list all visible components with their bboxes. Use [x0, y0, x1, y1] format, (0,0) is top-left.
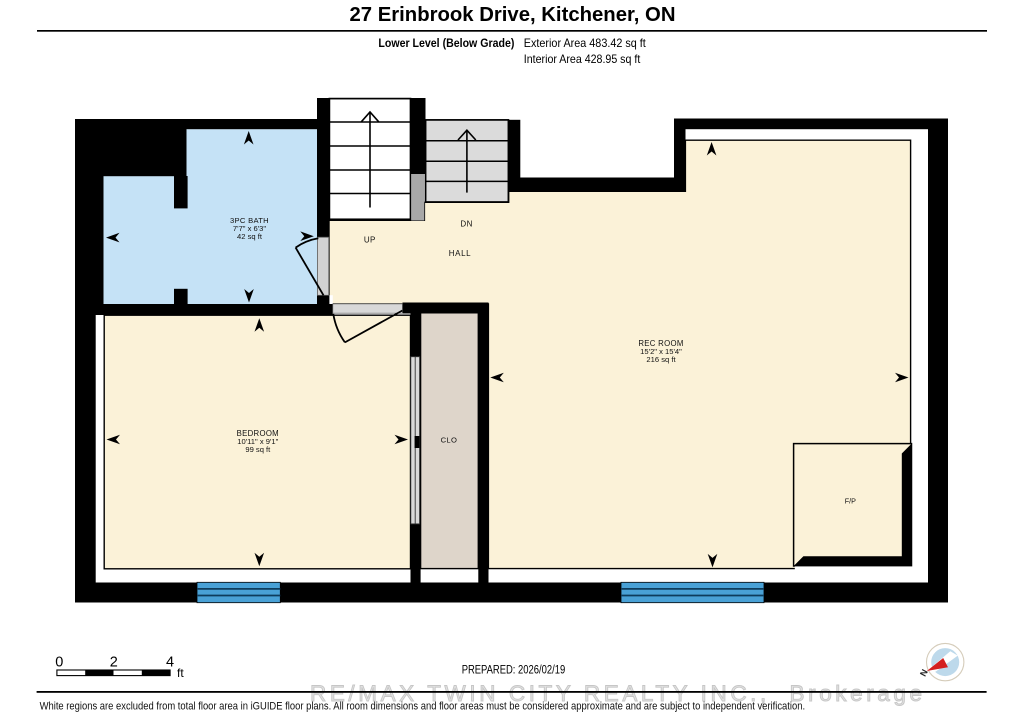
svg-text:2: 2 — [110, 655, 118, 671]
svg-text:DN: DN — [460, 220, 472, 229]
svg-text:27 Erinbrook Drive, Kitchener,: 27 Erinbrook Drive, Kitchener, ON — [350, 3, 676, 26]
svg-text:HALL: HALL — [449, 249, 471, 258]
svg-text:Interior Area 428.95 sq ft: Interior Area 428.95 sq ft — [524, 52, 641, 66]
svg-text:4: 4 — [166, 655, 174, 671]
svg-text:CLO: CLO — [441, 436, 458, 445]
svg-text:White regions are excluded fro: White regions are excluded from total fl… — [40, 700, 806, 712]
svg-text:0: 0 — [55, 655, 63, 671]
svg-text:UP: UP — [364, 236, 376, 245]
svg-text:Lower Level (Below Grade): Lower Level (Below Grade) — [378, 36, 514, 50]
svg-text:ft: ft — [177, 666, 184, 680]
svg-text:99 sq ft: 99 sq ft — [245, 445, 271, 454]
svg-text:42 sq ft: 42 sq ft — [237, 232, 263, 241]
svg-text:PREPARED: 2026/02/19: PREPARED: 2026/02/19 — [462, 663, 566, 677]
svg-text:216 sq ft: 216 sq ft — [646, 355, 676, 364]
svg-text:Exterior Area 483.42 sq ft: Exterior Area 483.42 sq ft — [524, 36, 647, 50]
svg-text:F/P: F/P — [845, 497, 856, 506]
